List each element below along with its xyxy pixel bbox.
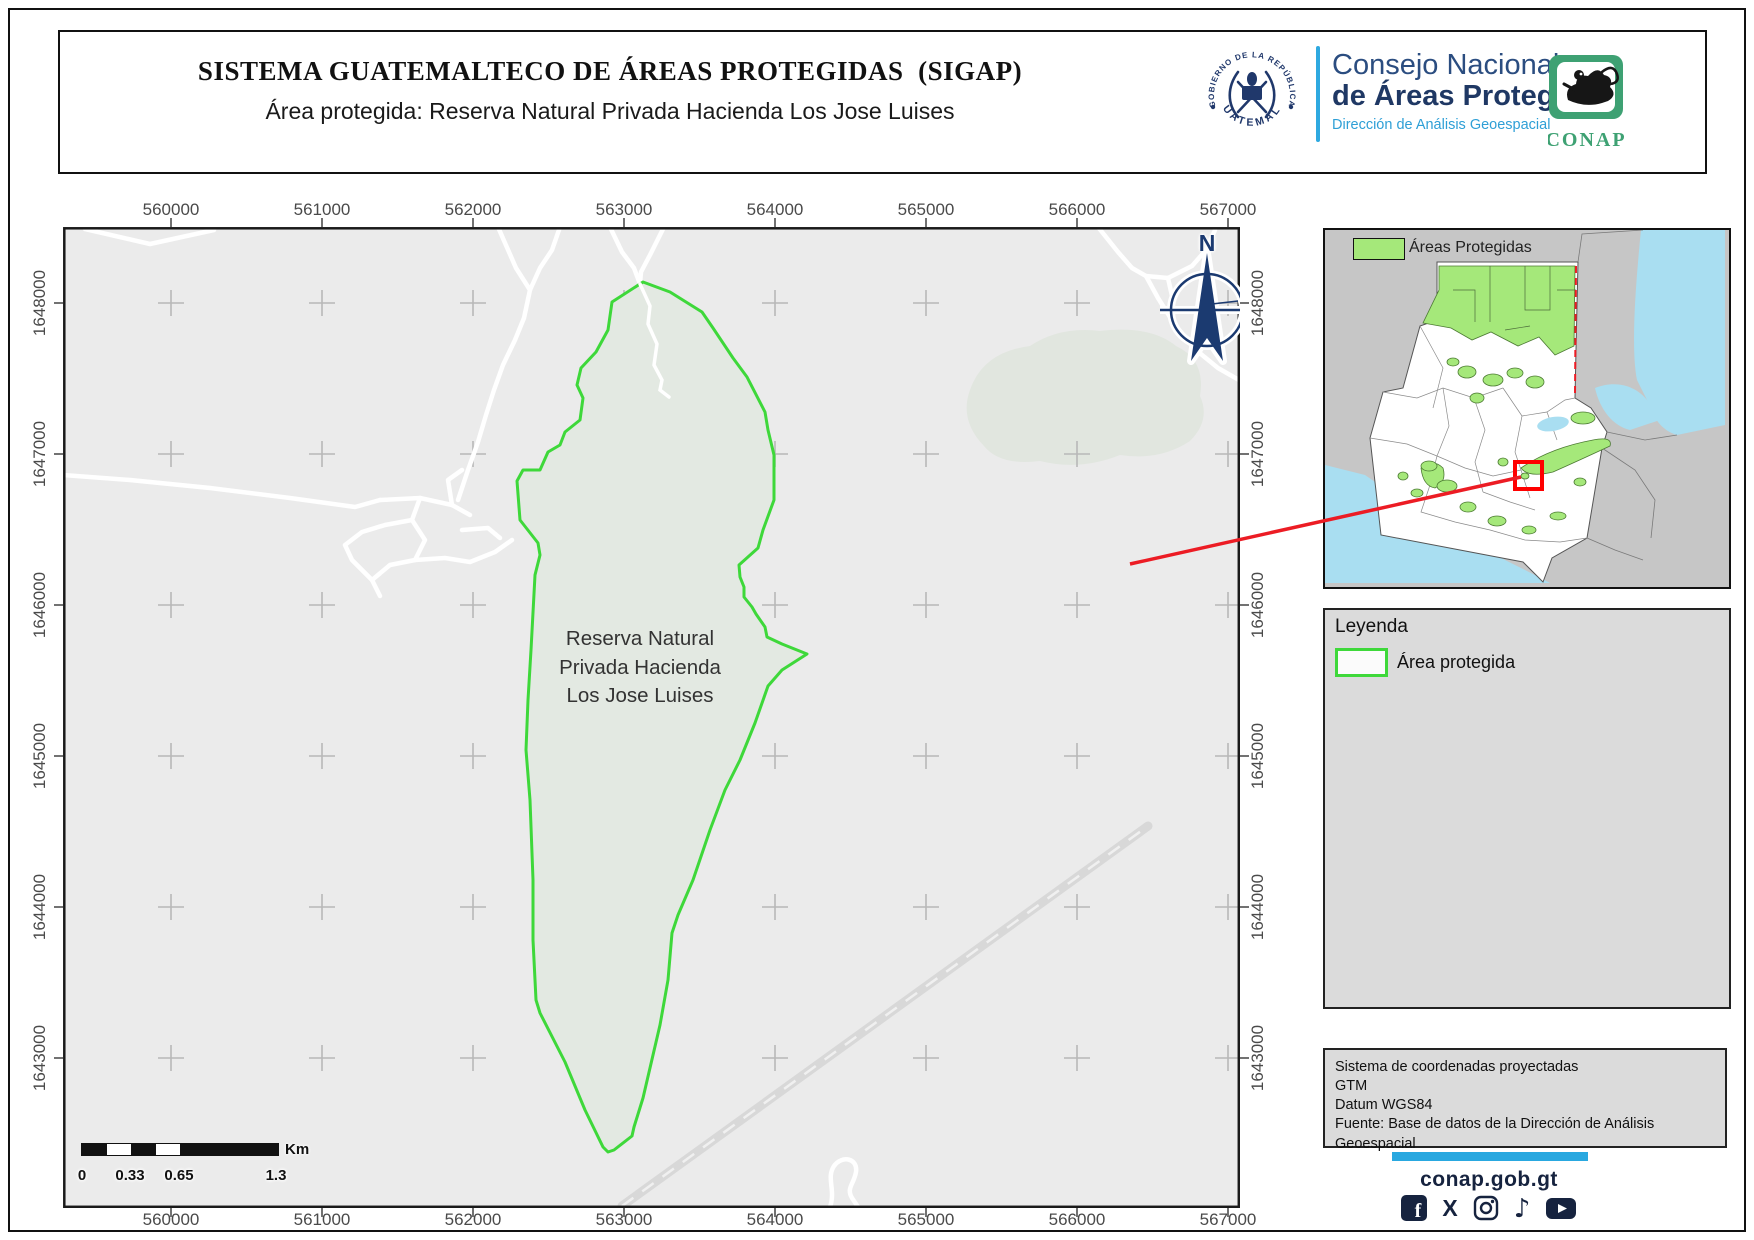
x-axis-label-bottom: 565000 xyxy=(898,1210,955,1230)
government-seal-icon: GOBIERNO DE LA REPÚBLICA GUATEMALA xyxy=(1202,44,1302,144)
x-axis-label-top: 563000 xyxy=(596,200,653,220)
conap-logo-icon: CONAP xyxy=(1548,54,1626,158)
x-axis-label-top: 565000 xyxy=(898,200,955,220)
y-axis-label-left: 1643000 xyxy=(30,1025,50,1091)
credits-box: Sistema de coordenadas proyectadas GTM D… xyxy=(1323,1048,1727,1148)
x-axis-label-top: 560000 xyxy=(143,200,200,220)
scale-unit: Km xyxy=(285,1141,309,1158)
x-axis-label-bottom: 562000 xyxy=(445,1210,502,1230)
scale-label: 0.33 xyxy=(115,1167,144,1184)
credits-line: Sistema de coordenadas proyectadas xyxy=(1335,1058,1715,1077)
protected-area-label: Reserva Natural Privada Hacienda Los Jos… xyxy=(559,625,721,711)
tiktok-icon[interactable]: ♪ xyxy=(1509,1194,1535,1222)
scale-label: 1.3 xyxy=(266,1167,287,1184)
inset-map-canvas xyxy=(1325,230,1725,583)
footer-accent-bar xyxy=(1392,1152,1588,1161)
y-axis-label-left: 1647000 xyxy=(30,421,50,487)
conap-wordmark: CONAP xyxy=(1548,129,1626,151)
y-axis-label-left: 1646000 xyxy=(30,572,50,638)
y-axis-label-right: 1644000 xyxy=(1248,874,1268,940)
credits-line: Datum WGS84 xyxy=(1335,1096,1715,1115)
x-axis-label-top: 561000 xyxy=(294,200,351,220)
y-axis-label-right: 1643000 xyxy=(1248,1025,1268,1091)
legend-title: Leyenda xyxy=(1335,616,1408,638)
inset-map: Áreas Protegidas xyxy=(1323,228,1731,589)
svg-text:♪: ♪ xyxy=(1514,1194,1531,1222)
x-axis-label-top: 564000 xyxy=(747,200,804,220)
x-axis-label-top: 562000 xyxy=(445,200,502,220)
x-axis-label-bottom: 563000 xyxy=(596,1210,653,1230)
credits-line: GTM xyxy=(1335,1077,1715,1096)
x-icon[interactable]: X xyxy=(1437,1195,1463,1221)
inset-legend-swatch xyxy=(1353,238,1405,260)
header-divider xyxy=(1316,46,1320,142)
x-axis-label-top: 567000 xyxy=(1200,200,1257,220)
x-axis-label-bottom: 566000 xyxy=(1049,1210,1106,1230)
instagram-icon[interactable] xyxy=(1473,1195,1499,1221)
page-subtitle: Área protegida: Reserva Natural Privada … xyxy=(90,98,1130,125)
page-title: SISTEMA GUATEMALTECO DE ÁREAS PROTEGIDAS… xyxy=(90,56,1130,87)
social-icons: f X ♪ xyxy=(1399,1194,1579,1222)
youtube-icon[interactable] xyxy=(1545,1195,1577,1221)
main-map-canvas xyxy=(63,227,1240,1208)
x-axis-label-bottom: 564000 xyxy=(747,1210,804,1230)
svg-text:X: X xyxy=(1442,1195,1458,1221)
x-axis-label-bottom: 560000 xyxy=(143,1210,200,1230)
legend-swatch xyxy=(1335,648,1388,677)
x-axis-label-top: 566000 xyxy=(1049,200,1106,220)
website-link[interactable]: conap.gob.gt xyxy=(1389,1168,1589,1192)
main-map: Reserva Natural Privada Hacienda Los Jos… xyxy=(63,227,1240,1208)
scale-label: 0 xyxy=(78,1167,86,1184)
y-axis-label-right: 1646000 xyxy=(1248,572,1268,638)
svg-text:f: f xyxy=(1415,1200,1422,1221)
y-axis-label-right: 1647000 xyxy=(1248,421,1268,487)
legend-item-label: Área protegida xyxy=(1397,652,1515,673)
y-axis-label-left: 1645000 xyxy=(30,723,50,789)
y-axis-label-left: 1644000 xyxy=(30,874,50,940)
scale-bar: Km 0 0.33 0.65 1.3 xyxy=(81,1143,279,1156)
y-axis-label-right: 1648000 xyxy=(1248,270,1268,336)
legend: Leyenda Área protegida xyxy=(1323,608,1731,1009)
facebook-icon[interactable]: f xyxy=(1401,1195,1427,1221)
north-label: N xyxy=(1199,230,1216,257)
y-axis-label-left: 1648000 xyxy=(30,270,50,336)
y-axis-label-right: 1645000 xyxy=(1248,723,1268,789)
x-axis-label-bottom: 567000 xyxy=(1200,1210,1257,1230)
credits-line: Fuente: Base de datos de la Dirección de… xyxy=(1335,1115,1715,1153)
header: SISTEMA GUATEMALTECO DE ÁREAS PROTEGIDAS… xyxy=(58,30,1707,174)
scale-bar-segments xyxy=(81,1143,279,1156)
inset-legend-label: Áreas Protegidas xyxy=(1409,239,1532,257)
x-axis-label-bottom: 561000 xyxy=(294,1210,351,1230)
map-sheet: SISTEMA GUATEMALTECO DE ÁREAS PROTEGIDAS… xyxy=(0,0,1754,1240)
scale-label: 0.65 xyxy=(164,1167,193,1184)
